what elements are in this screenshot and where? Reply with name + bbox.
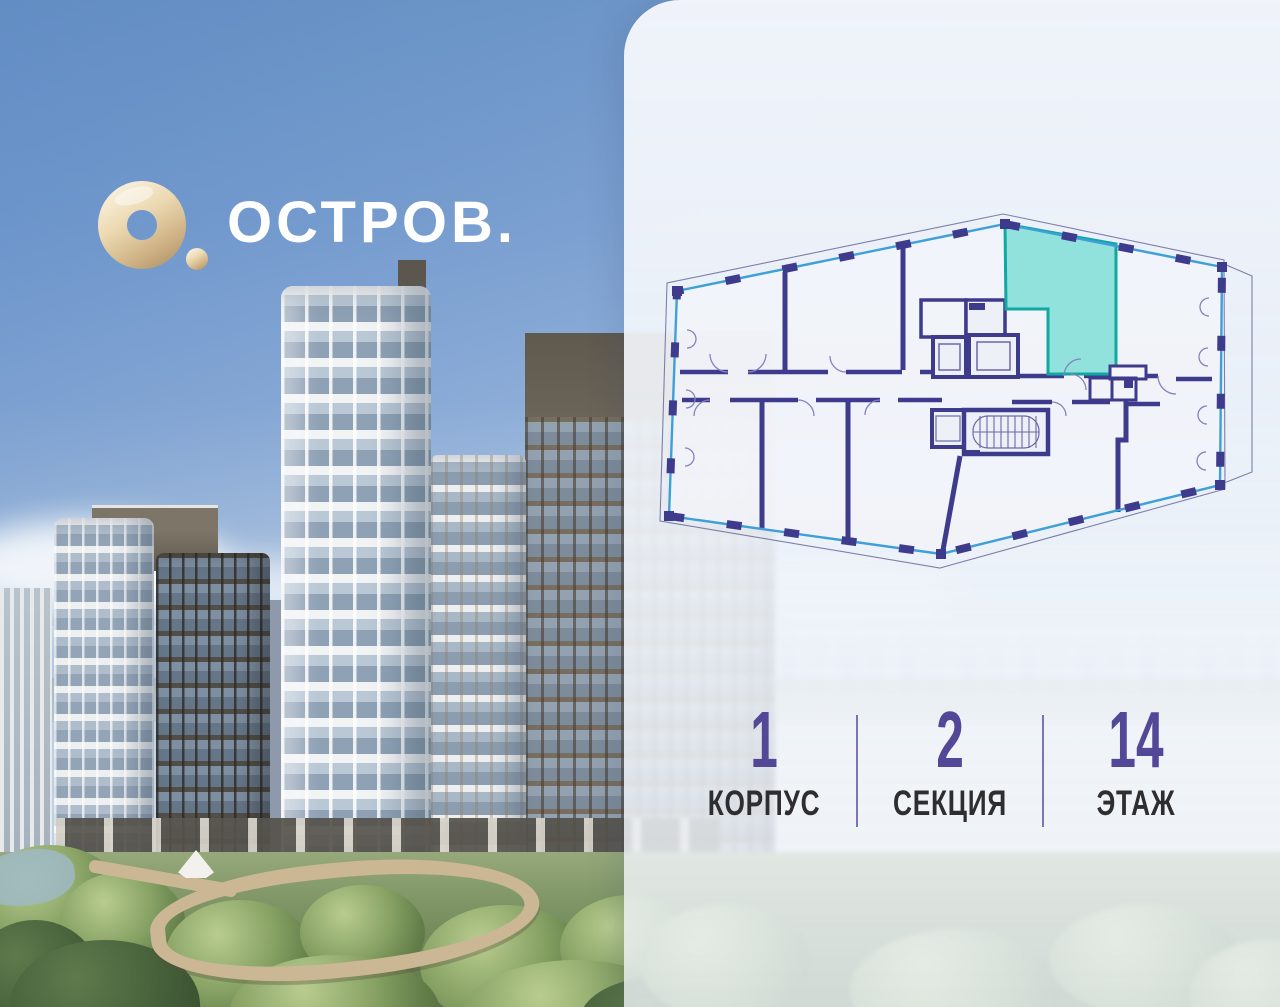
info-panel: 1 КОРПУС 2 СЕКЦИЯ 14 ЭТАЖ bbox=[624, 0, 1280, 1007]
stat-divider bbox=[856, 715, 858, 827]
stairwell bbox=[964, 410, 1048, 456]
brand-logo[interactable]: ОСТРОВ. bbox=[98, 180, 517, 292]
corpus-value: 1 bbox=[708, 703, 820, 777]
brand-name: ОСТРОВ. bbox=[227, 194, 517, 252]
unit-location-stats: 1 КОРПУС 2 СЕКЦИЯ 14 ЭТАЖ bbox=[640, 703, 1280, 827]
floor-label: ЭТАЖ bbox=[1069, 787, 1204, 821]
pearl-ring-icon bbox=[98, 180, 210, 292]
corpus-label: КОРПУС bbox=[697, 787, 832, 821]
stat-section: 2 СЕКЦИЯ bbox=[860, 703, 1040, 821]
section-label: СЕКЦИЯ bbox=[883, 787, 1018, 821]
stat-divider bbox=[1042, 715, 1044, 827]
elevator-shaft bbox=[933, 337, 966, 377]
floor-plan bbox=[640, 180, 1280, 590]
section-value: 2 bbox=[894, 703, 1006, 777]
stat-floor: 14 ЭТАЖ bbox=[1046, 703, 1226, 821]
stat-corpus: 1 КОРПУС bbox=[674, 703, 854, 821]
floor-value: 14 bbox=[1080, 703, 1192, 777]
